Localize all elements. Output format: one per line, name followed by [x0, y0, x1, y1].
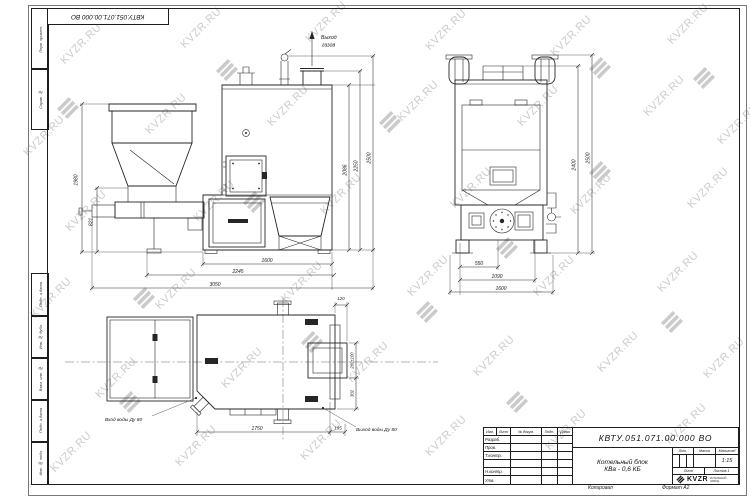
dim-total-height: 2500	[367, 152, 373, 164]
tb-mass-label: Масса	[694, 448, 716, 455]
drawing-canvas: 1980 821 2086 2250 2500 1600 2245 3050 В…	[0, 0, 750, 500]
dim-plan-195: 195	[334, 426, 342, 431]
stamp-label: Справ. №	[38, 90, 43, 109]
dim-plan-302: 302	[350, 389, 355, 397]
stamp-inv-dubl: Инв. № дубл.	[31, 315, 49, 359]
front-view-dimensions: 2400 2500 550 1090 1600	[448, 53, 595, 295]
front-view-linework	[446, 55, 561, 253]
dim-plan-200pm100: 200±100	[350, 352, 355, 370]
dim-hopper-height: 1980	[74, 174, 80, 185]
tb-empty	[542, 436, 558, 444]
tb-mass-value	[694, 455, 716, 468]
tb-empty	[511, 452, 542, 460]
product-name-line1: Котельный блок	[597, 459, 648, 467]
tb-empty	[542, 452, 558, 460]
tb-row-tkontr: Т.контр.	[484, 452, 511, 460]
dim-plan-120: 120	[337, 296, 345, 301]
dim-auger-height: 821	[89, 218, 95, 227]
tb-doc-number: КВТУ.051.071.00.000 ВО	[573, 428, 738, 448]
kvzr-logo-icon	[676, 475, 685, 484]
tb-col-podp: Подп.	[542, 428, 558, 436]
tb-empty	[542, 468, 558, 476]
side-view-linework	[79, 31, 332, 254]
tb-sheet-label: Лист	[673, 468, 705, 475]
tb-product-name: Котельный блок КВа - 0,6 КБ	[573, 448, 673, 484]
copied-label: Копировал	[588, 485, 613, 491]
tb-row-blank	[484, 460, 511, 468]
dim-front-550: 550	[475, 261, 484, 267]
dim-overall-length: 3050	[209, 282, 220, 288]
tb-empty	[511, 468, 542, 476]
doc-number-top: КВТУ.051.071.00.000 ВО	[71, 13, 144, 20]
dim-front-height-1: 2400	[572, 159, 578, 171]
stamp-label: Взам. инв. №	[38, 366, 43, 391]
tb-lit-box2	[680, 455, 687, 468]
tb-lit-label: Лит.	[673, 448, 694, 455]
drawing-sheet: { "watermark": { "text": "KVZR.RU" }, "f…	[0, 0, 750, 500]
water-outlet-label: Выход воды Ду 80	[356, 427, 397, 433]
stamp-podp-data-2: Подп. и дата	[31, 399, 49, 443]
tb-empty	[511, 436, 542, 444]
gas-arrow-icon	[309, 31, 314, 39]
dim-front-width: 1600	[495, 286, 506, 292]
tb-empty	[511, 460, 542, 468]
product-name-line2: КВа - 0,6 КБ	[604, 466, 640, 474]
tb-empty	[558, 460, 573, 468]
tb-col-data: Дата	[558, 428, 573, 436]
tb-lit-box1	[673, 455, 680, 468]
stamp-sprav-no: Справ. №	[31, 68, 49, 130]
tb-logo-cell: KVZR КОТЕЛЬНЫЙЗАВОД	[673, 475, 738, 484]
tb-scale-value: 1:15	[716, 455, 738, 468]
tb-empty	[511, 476, 542, 484]
gas-outlet-label-2: газов	[322, 43, 336, 49]
water-inlet-label: Вход воды Ду 80	[105, 417, 142, 423]
dim-body-height: 2086	[343, 164, 349, 176]
gas-outlet-label-1: Выход	[321, 35, 337, 41]
title-block: Изм. Лист № докум. Подп. Дата Разраб. Пр…	[483, 427, 739, 485]
stamp-label: Подп. и дата	[38, 282, 43, 307]
tb-col-list: Лист	[497, 428, 511, 436]
tb-row-razrab: Разраб.	[484, 436, 511, 444]
tb-scale-label: Масштаб	[716, 448, 738, 455]
tb-col-dokum: № докум.	[511, 428, 542, 436]
tb-empty	[558, 468, 573, 476]
dim-chimney-height: 2250	[354, 160, 360, 172]
tb-row-utv: Утв.	[484, 476, 511, 484]
stamp-label: Инв. № подл.	[38, 450, 43, 476]
format-label: Формат А2	[662, 485, 689, 491]
tb-empty	[542, 460, 558, 468]
kvzr-logo-subtext: КОТЕЛЬНЫЙЗАВОД	[710, 477, 726, 483]
stamp-label: Подп. и дата	[38, 408, 43, 433]
tb-col-izm: Изм.	[484, 428, 497, 436]
tb-lit-box3	[687, 455, 694, 468]
tb-empty	[542, 476, 558, 484]
tb-empty	[542, 444, 558, 452]
dim-plan-1750: 1750	[251, 426, 262, 432]
dim-boiler-length: 1600	[261, 258, 272, 264]
tb-empty	[558, 436, 573, 444]
dim-front-1090: 1090	[491, 274, 502, 280]
tb-row-prov: Пров.	[484, 444, 511, 452]
dim-mid-length: 2245	[231, 269, 243, 275]
doc-number-top-box: КВТУ.051.071.00.000 ВО	[47, 8, 169, 25]
kvzr-logo-text: KVZR	[687, 476, 708, 483]
tb-empty	[511, 444, 542, 452]
tb-row-nkontr: Н.контр.	[484, 468, 511, 476]
tb-empty	[558, 452, 573, 460]
stamp-label: Перв. примен.	[38, 26, 43, 53]
stamp-inv-podl: Инв. № подл.	[31, 441, 49, 485]
tb-empty	[558, 476, 573, 484]
stamp-podp-data-1: Подп. и дата	[31, 273, 49, 317]
tb-sheets-label: Листов 1	[705, 468, 738, 475]
tb-empty	[558, 444, 573, 452]
stamp-label: Инв. № дубл.	[38, 324, 43, 349]
dim-front-height-2: 2500	[586, 152, 592, 164]
stamp-vzam-inv: Взам. инв. №	[31, 357, 49, 401]
